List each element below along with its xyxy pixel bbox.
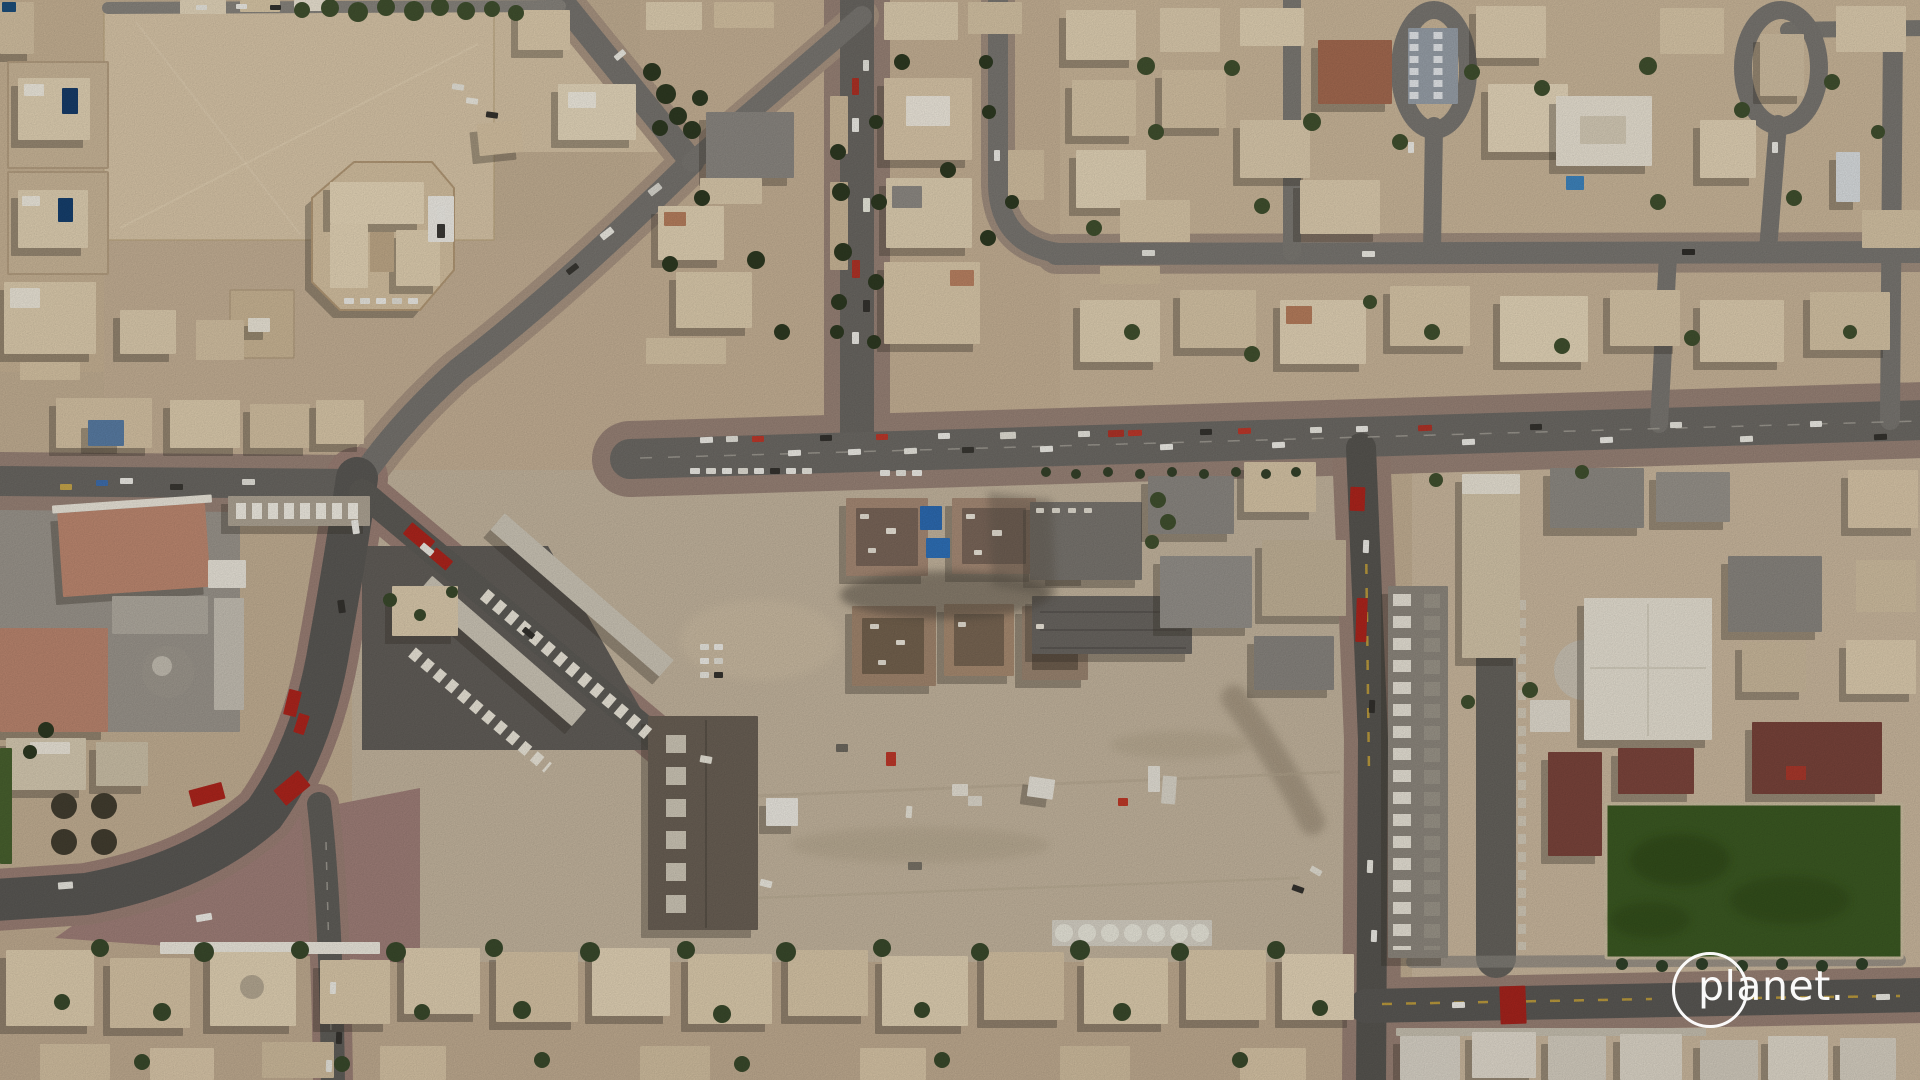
- planet-logo: planet.: [1672, 950, 1912, 1030]
- satellite-scene: [0, 0, 1920, 1080]
- satellite-image: planet.: [0, 0, 1920, 1080]
- film-grain: [0, 0, 1920, 1080]
- planet-logo-text: planet.: [1698, 966, 1844, 1007]
